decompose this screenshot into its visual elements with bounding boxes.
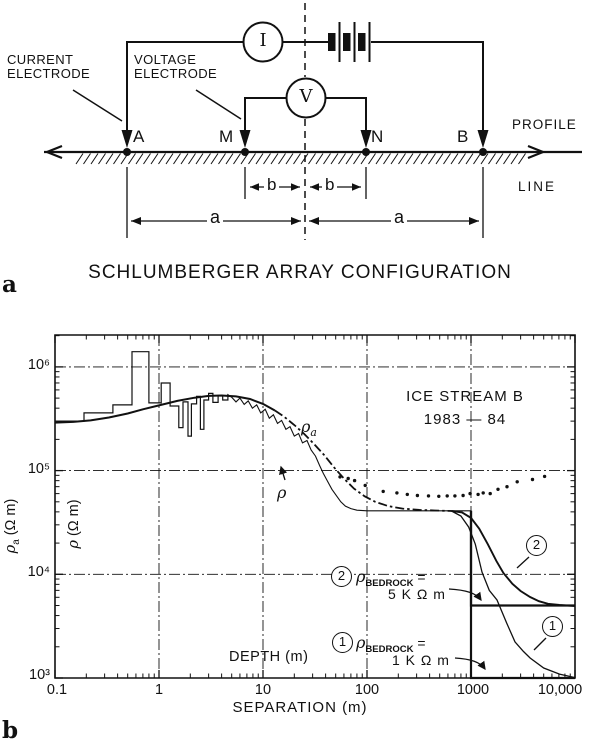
panel-b-letter: b — [2, 718, 18, 743]
rho-label-arrow — [281, 467, 285, 480]
measured-dots — [416, 494, 419, 497]
ammeter-label: I — [253, 31, 273, 51]
y-axis-title-rho-a: ρa (Ω m) — [4, 484, 24, 568]
rho-a-model-smooth — [55, 396, 275, 423]
voltmeter-label: V — [296, 87, 316, 107]
dim-b-left-label: b — [264, 176, 279, 195]
rho-a-symbol: ρ — [3, 545, 19, 554]
two-panel-figure: CURRENT ELECTRODE VOLTAGE ELECTRODE I V … — [0, 0, 600, 749]
dim-a-left-label: a — [207, 208, 223, 228]
measured-histogram — [55, 352, 232, 436]
chart-dynamic-layer — [55, 335, 575, 678]
y-axis-title-rho: ρ (Ω m) — [67, 482, 87, 566]
measured-dots — [446, 494, 449, 497]
x-tick-10: 10 — [248, 683, 278, 699]
measured-dots — [353, 479, 356, 482]
diagram-title: SCHLUMBERGER ARRAY CONFIGURATION — [0, 263, 600, 284]
x-tick-0p1: 0.1 — [42, 683, 72, 699]
measured-dots — [496, 488, 499, 491]
curve-2-marker: 2 — [526, 535, 547, 556]
measured-dots — [382, 490, 385, 493]
curve-label-rho-a: ρa — [301, 418, 317, 439]
label-leader-lines — [73, 90, 241, 121]
battery-icon — [328, 22, 370, 62]
measured-dots — [531, 478, 534, 481]
electrode-a-label: A — [133, 128, 144, 147]
measured-dots — [406, 493, 409, 496]
x-axis-title: SEPARATION (m) — [180, 700, 420, 717]
resistivity-chart — [0, 310, 600, 749]
measured-dots — [468, 492, 471, 495]
measured-dots — [437, 495, 440, 498]
dim-a-right-label: a — [391, 208, 407, 228]
electrode-n-label: N — [371, 128, 383, 147]
profile-word: PROFILE — [512, 118, 577, 133]
y-tick-1e5: 10⁵ — [14, 462, 50, 478]
current-electrode-label: CURRENT ELECTRODE — [7, 53, 90, 82]
curve2-leader — [517, 557, 529, 568]
measured-dots — [453, 494, 456, 497]
curve-1-marker: 1 — [542, 616, 563, 637]
rho-symbol: ρ — [66, 540, 82, 549]
measured-dots — [427, 494, 430, 497]
rho-step-model-1 — [471, 511, 575, 678]
y-tick-1e3: 10³ — [14, 668, 50, 684]
ground-hatching — [76, 154, 526, 165]
measured-dots — [516, 480, 519, 483]
bedrock-5k-arrow — [449, 589, 481, 600]
annotation-1-circle: 1 — [332, 632, 353, 653]
measured-dots — [338, 475, 341, 478]
measured-dots — [482, 491, 485, 494]
line-word: LINE — [518, 180, 556, 195]
x-tick-1: 1 — [149, 683, 169, 699]
annotation-2-circle: 2 — [331, 566, 352, 587]
annotation-2-value: 5 K Ω m — [388, 587, 446, 602]
x-tick-1000: 1000 — [448, 683, 498, 699]
dim-b-right-label: b — [322, 176, 337, 195]
voltage-electrode-label: VOLTAGE ELECTRODE — [134, 53, 217, 82]
measured-dots — [461, 494, 464, 497]
panel-a-letter: a — [2, 272, 17, 297]
measured-dots — [543, 475, 546, 478]
rho-step-model-2 — [471, 511, 575, 606]
measured-dots — [347, 477, 350, 480]
legend-line-1: ICE STREAM B — [385, 389, 545, 406]
measured-dots — [489, 492, 492, 495]
electrode-b-label: B — [457, 128, 468, 147]
x-tick-10000: 10,000 — [528, 683, 592, 699]
curve-label-rho: ρ — [277, 484, 286, 502]
y-tick-1e6: 10⁶ — [14, 358, 50, 374]
legend-line-2: 1983 — 84 — [385, 412, 545, 429]
measured-dots — [395, 491, 398, 494]
x-tick-100: 100 — [347, 683, 387, 699]
measured-dots — [364, 484, 367, 487]
measured-dots — [505, 485, 508, 488]
depth-axis-label: DEPTH (m) — [229, 650, 308, 666]
measured-dots — [476, 493, 479, 496]
electrode-m-label: M — [219, 128, 233, 147]
annotation-1-value: 1 K Ω m — [392, 653, 450, 668]
curve1-leader — [534, 638, 546, 650]
